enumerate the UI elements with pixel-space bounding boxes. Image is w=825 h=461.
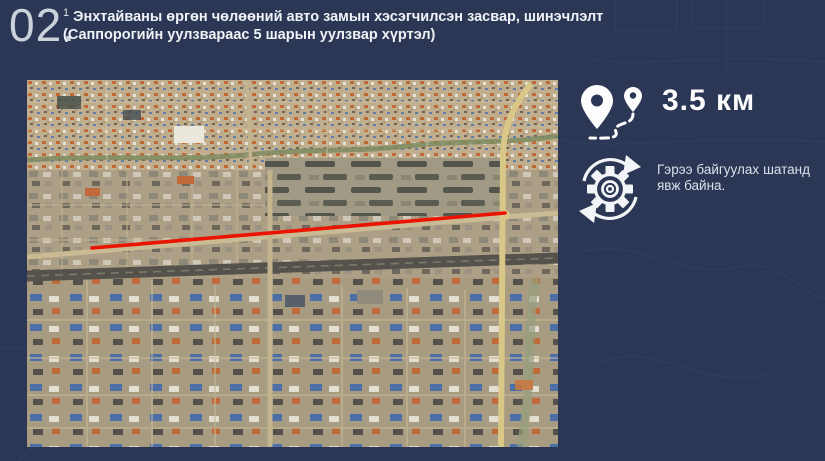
slide-title: Энхтайваны өргөн чөлөөний авто замын хэс… bbox=[73, 9, 603, 25]
slide: 02. 1Энхтайваны өргөн чөлөөний авто замы… bbox=[0, 0, 825, 461]
status-text: Гэрээ байгуулах шатанд явж байна. bbox=[657, 162, 810, 194]
footnote-marker: 1 bbox=[63, 7, 69, 19]
process-gear-icon bbox=[573, 151, 647, 225]
distance-value: 3.5 км bbox=[662, 84, 755, 118]
satellite-map bbox=[27, 80, 558, 447]
slide-header: 1Энхтайваны өргөн чөлөөний авто замын хэ… bbox=[63, 9, 623, 44]
slide-subtitle: (Саппорогийн уулзвараас 5 шарын уулзвар … bbox=[63, 27, 623, 45]
route-distance-icon bbox=[577, 83, 647, 145]
